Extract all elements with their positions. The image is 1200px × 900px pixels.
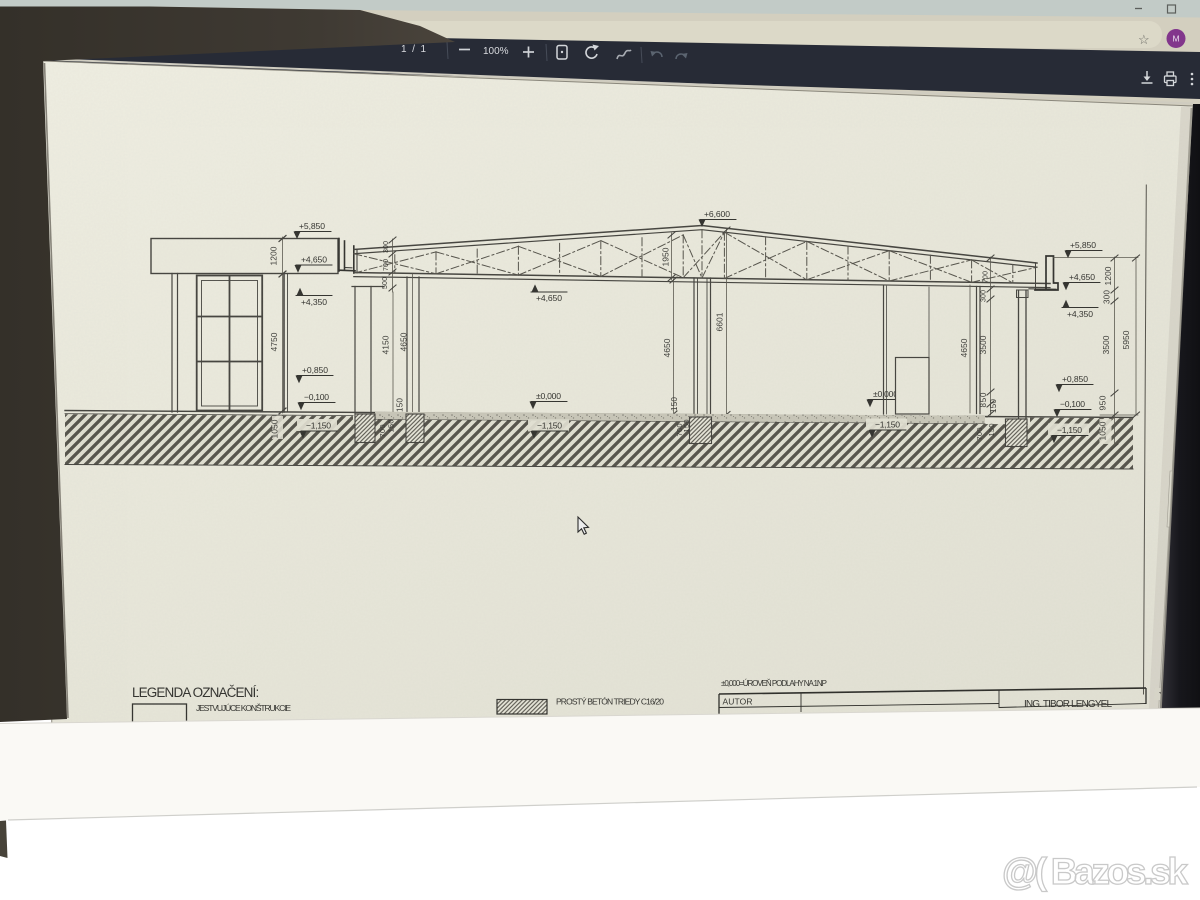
- svg-text:M: M: [1173, 34, 1180, 44]
- svg-text:☆: ☆: [1138, 32, 1150, 47]
- svg-text:@( Bazos.sk: @( Bazos.sk: [1002, 851, 1188, 892]
- svg-text:1 / 1: 1 / 1: [401, 44, 426, 55]
- svg-text:100%: 100%: [483, 46, 509, 57]
